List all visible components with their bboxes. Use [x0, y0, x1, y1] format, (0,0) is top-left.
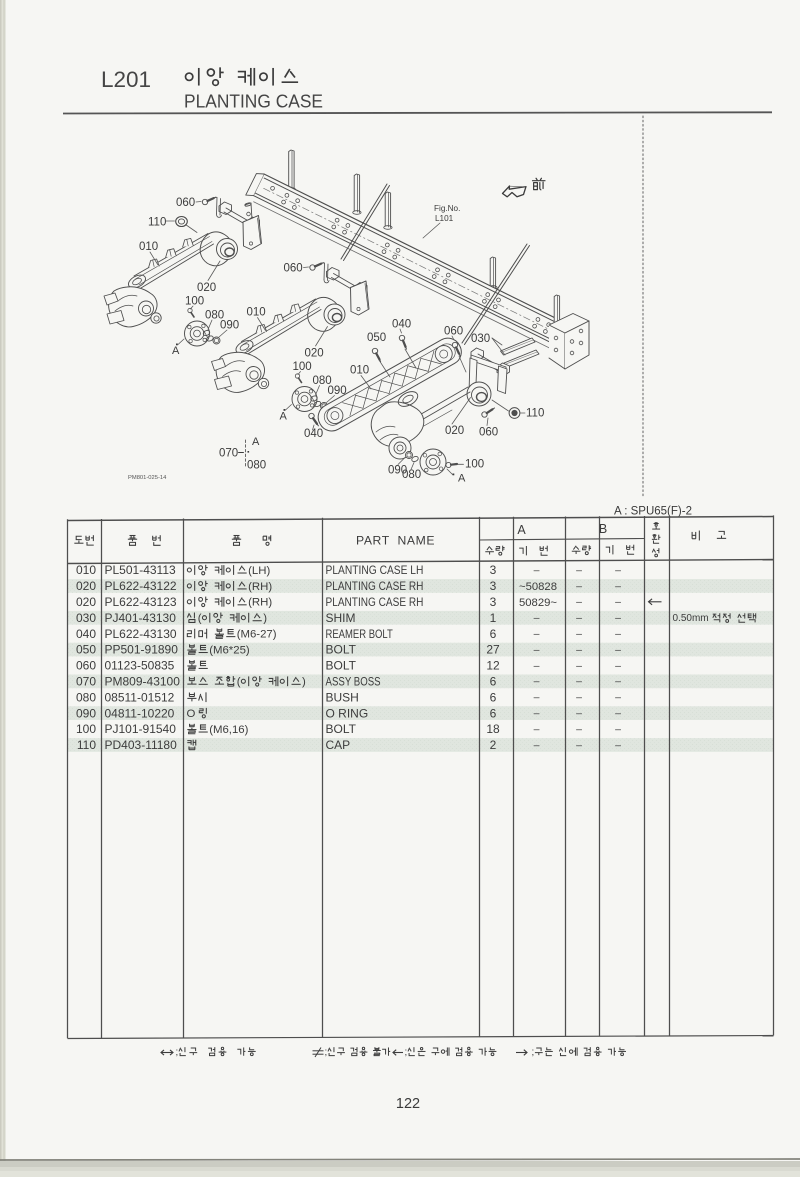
svg-text:~50828: ~50828: [519, 581, 557, 593]
svg-text:04811-10220: 04811-10220: [105, 706, 175, 720]
svg-text:050: 050: [367, 332, 386, 344]
svg-text:(LH): (LH): [248, 565, 270, 577]
svg-text:040: 040: [392, 319, 411, 331]
svg-text:PP501-91890: PP501-91890: [105, 643, 179, 657]
svg-text:50829~: 50829~: [519, 597, 557, 609]
svg-text:PLANTING CASE RH: PLANTING CASE RH: [326, 579, 424, 593]
svg-text:3: 3: [490, 595, 497, 609]
svg-text:110: 110: [77, 738, 96, 752]
svg-text:–: –: [615, 564, 621, 576]
svg-text:(: (: [198, 613, 202, 625]
svg-text:040: 040: [304, 428, 323, 440]
svg-text:080: 080: [247, 460, 266, 472]
svg-text:–: –: [576, 628, 582, 640]
svg-text:040: 040: [76, 627, 96, 641]
svg-text:01123-50835: 01123-50835: [105, 659, 175, 673]
svg-text:6: 6: [490, 627, 497, 641]
svg-text:–: –: [615, 644, 621, 656]
svg-text:020: 020: [76, 579, 96, 593]
svg-text:–: –: [576, 739, 582, 751]
svg-text:(: (: [237, 676, 241, 688]
svg-text:060: 060: [76, 659, 96, 673]
svg-text:A: A: [172, 345, 180, 357]
svg-text:–: –: [534, 564, 540, 576]
svg-text:BUSH: BUSH: [326, 690, 359, 704]
svg-text:–: –: [576, 692, 582, 704]
svg-text:010: 010: [76, 563, 96, 577]
svg-text:–: –: [576, 580, 582, 592]
svg-text:–: –: [576, 676, 582, 688]
svg-text:–: –: [615, 723, 621, 735]
svg-text:(RH): (RH): [248, 581, 272, 593]
svg-text:A: A: [517, 523, 526, 537]
svg-text:–: –: [615, 612, 621, 624]
svg-text:100: 100: [293, 361, 312, 373]
svg-text:(M6*25): (M6*25): [209, 644, 250, 656]
svg-text:–: –: [615, 739, 621, 751]
svg-text:–: –: [534, 644, 540, 656]
svg-text:REAMER BOLT: REAMER BOLT: [326, 627, 394, 641]
svg-text:–: –: [534, 723, 540, 735]
svg-text:BOLT: BOLT: [326, 659, 357, 673]
svg-text:110: 110: [148, 217, 166, 229]
svg-text:PL622-43130: PL622-43130: [105, 627, 177, 641]
svg-text:A: A: [280, 411, 288, 423]
svg-text:PLANTING CASE: PLANTING CASE: [184, 91, 323, 112]
svg-text:110: 110: [526, 408, 544, 420]
svg-text:): ): [263, 613, 267, 625]
svg-text:PM801-025-14: PM801-025-14: [128, 475, 167, 481]
svg-text:0.50mm: 0.50mm: [673, 613, 709, 624]
svg-text:–: –: [534, 676, 540, 688]
svg-text:020: 020: [305, 348, 324, 360]
svg-text:B: B: [599, 522, 607, 536]
svg-text:;: ;: [532, 1047, 535, 1058]
svg-text:PJ101-91540: PJ101-91540: [105, 722, 177, 736]
svg-text:060: 060: [284, 263, 303, 275]
svg-text:010: 010: [247, 307, 266, 319]
svg-text:PL622-43122: PL622-43122: [105, 579, 177, 593]
svg-text:(M6,16): (M6,16): [209, 724, 248, 736]
svg-text:1: 1: [490, 611, 497, 625]
svg-text:100: 100: [185, 296, 204, 308]
svg-text:3: 3: [490, 579, 497, 593]
svg-text:–: –: [576, 723, 582, 735]
svg-text:L101: L101: [435, 214, 454, 223]
svg-text:010: 010: [139, 241, 158, 253]
svg-text:020: 020: [197, 282, 216, 294]
svg-text:080: 080: [402, 469, 421, 481]
svg-text:–: –: [615, 676, 621, 688]
svg-text:2: 2: [490, 738, 497, 752]
svg-text:A: A: [252, 436, 260, 448]
svg-text:–: –: [534, 628, 540, 640]
svg-text:PLANTING CASE RH: PLANTING CASE RH: [326, 595, 424, 609]
svg-text:A: A: [458, 473, 466, 485]
svg-text:3: 3: [490, 563, 497, 577]
svg-text:090: 090: [76, 706, 96, 720]
svg-text:(M6-27): (M6-27): [237, 629, 277, 641]
svg-text:O: O: [187, 708, 196, 720]
svg-text:070: 070: [219, 448, 238, 460]
svg-text:–: –: [615, 628, 621, 640]
svg-text:PM809-43100: PM809-43100: [105, 675, 181, 689]
svg-text:060: 060: [479, 427, 498, 439]
svg-text:;: ;: [405, 1047, 408, 1058]
svg-text:PART NAME: PART NAME: [356, 534, 435, 548]
svg-text:030: 030: [76, 611, 96, 625]
svg-text:–: –: [576, 612, 582, 624]
svg-text:122: 122: [396, 1096, 420, 1112]
svg-text:–: –: [534, 692, 540, 704]
svg-text:060: 060: [176, 197, 195, 209]
svg-text:–: –: [534, 660, 540, 672]
svg-text:L201: L201: [101, 67, 151, 92]
svg-text:100: 100: [465, 459, 484, 471]
svg-text:PD403-11180: PD403-11180: [105, 738, 178, 752]
svg-text:020: 020: [445, 425, 464, 437]
svg-text:CAP: CAP: [326, 738, 351, 752]
svg-text:–: –: [615, 692, 621, 704]
svg-text:): ): [302, 676, 306, 688]
svg-text:–: –: [534, 739, 540, 751]
svg-text:6: 6: [490, 706, 497, 720]
svg-text:6: 6: [490, 690, 497, 704]
svg-text:–: –: [576, 596, 582, 608]
svg-text:–: –: [576, 564, 582, 576]
svg-text:;: ;: [176, 1047, 179, 1058]
svg-text:(RH): (RH): [248, 597, 272, 609]
svg-text:BOLT: BOLT: [326, 643, 357, 657]
svg-text:100: 100: [76, 722, 96, 736]
svg-text:08511-01512: 08511-01512: [105, 690, 175, 704]
svg-text:090: 090: [220, 320, 239, 332]
svg-text:010: 010: [350, 365, 369, 377]
svg-text:060: 060: [444, 326, 463, 338]
svg-text:–: –: [534, 612, 540, 624]
svg-text:030: 030: [471, 333, 490, 345]
svg-text:PLANTING CASE LH: PLANTING CASE LH: [326, 563, 424, 577]
svg-text:–: –: [576, 644, 582, 656]
svg-text:Fig.No.: Fig.No.: [434, 204, 460, 213]
svg-text:6: 6: [490, 675, 497, 689]
svg-text:27: 27: [486, 643, 500, 657]
svg-text:12: 12: [486, 659, 500, 673]
svg-text:–: –: [615, 660, 621, 672]
svg-text:–: –: [534, 708, 540, 720]
svg-text:–: –: [615, 596, 621, 608]
svg-text:;: ;: [325, 1047, 328, 1058]
svg-text:PL622-43123: PL622-43123: [105, 595, 177, 609]
svg-text:SHIM: SHIM: [326, 611, 356, 625]
svg-text:070: 070: [76, 675, 96, 689]
svg-text:020: 020: [76, 595, 96, 609]
svg-text:PL501-43113: PL501-43113: [105, 563, 177, 577]
svg-text:–: –: [576, 660, 582, 672]
svg-text:050: 050: [76, 643, 96, 657]
svg-text:O RING: O RING: [326, 706, 369, 720]
svg-text:080: 080: [76, 690, 96, 704]
svg-text:ASSY BOSS: ASSY BOSS: [326, 675, 381, 689]
svg-text:18: 18: [486, 722, 500, 736]
svg-text:–: –: [576, 708, 582, 720]
svg-text:BOLT: BOLT: [326, 722, 357, 736]
svg-text:A : SPU65(F)-2: A : SPU65(F)-2: [614, 506, 692, 518]
svg-text:–: –: [615, 708, 621, 720]
svg-text:–: –: [615, 580, 621, 592]
svg-text:PJ401-43130: PJ401-43130: [105, 611, 177, 625]
